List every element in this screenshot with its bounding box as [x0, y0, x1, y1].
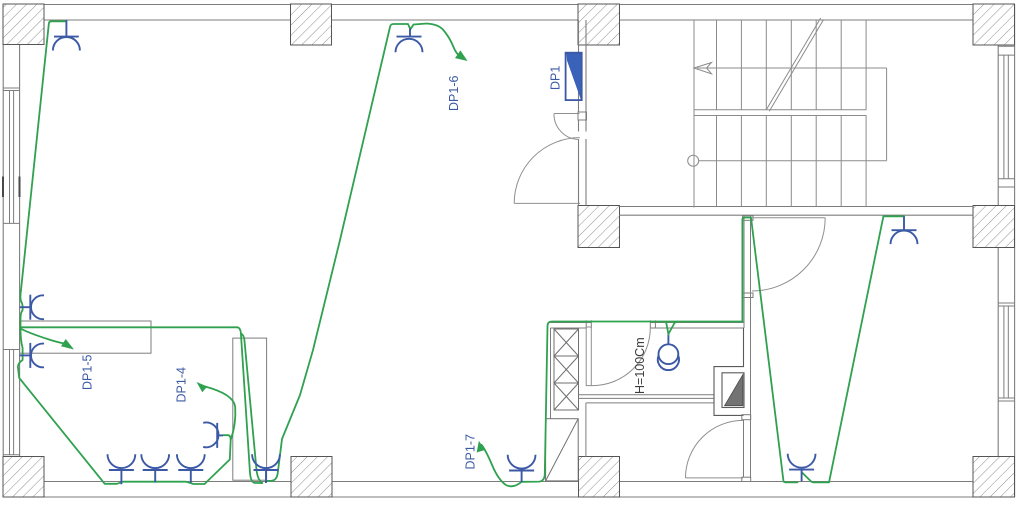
svg-text:DP1: DP1 — [549, 66, 563, 90]
svg-text:H=100Cm: H=100Cm — [633, 337, 647, 394]
svg-text:DP1-5: DP1-5 — [81, 355, 95, 390]
svg-text:DP1-4: DP1-4 — [175, 367, 189, 402]
svg-text:DP1-7: DP1-7 — [464, 434, 478, 469]
svg-text:DP1-6: DP1-6 — [447, 76, 461, 111]
